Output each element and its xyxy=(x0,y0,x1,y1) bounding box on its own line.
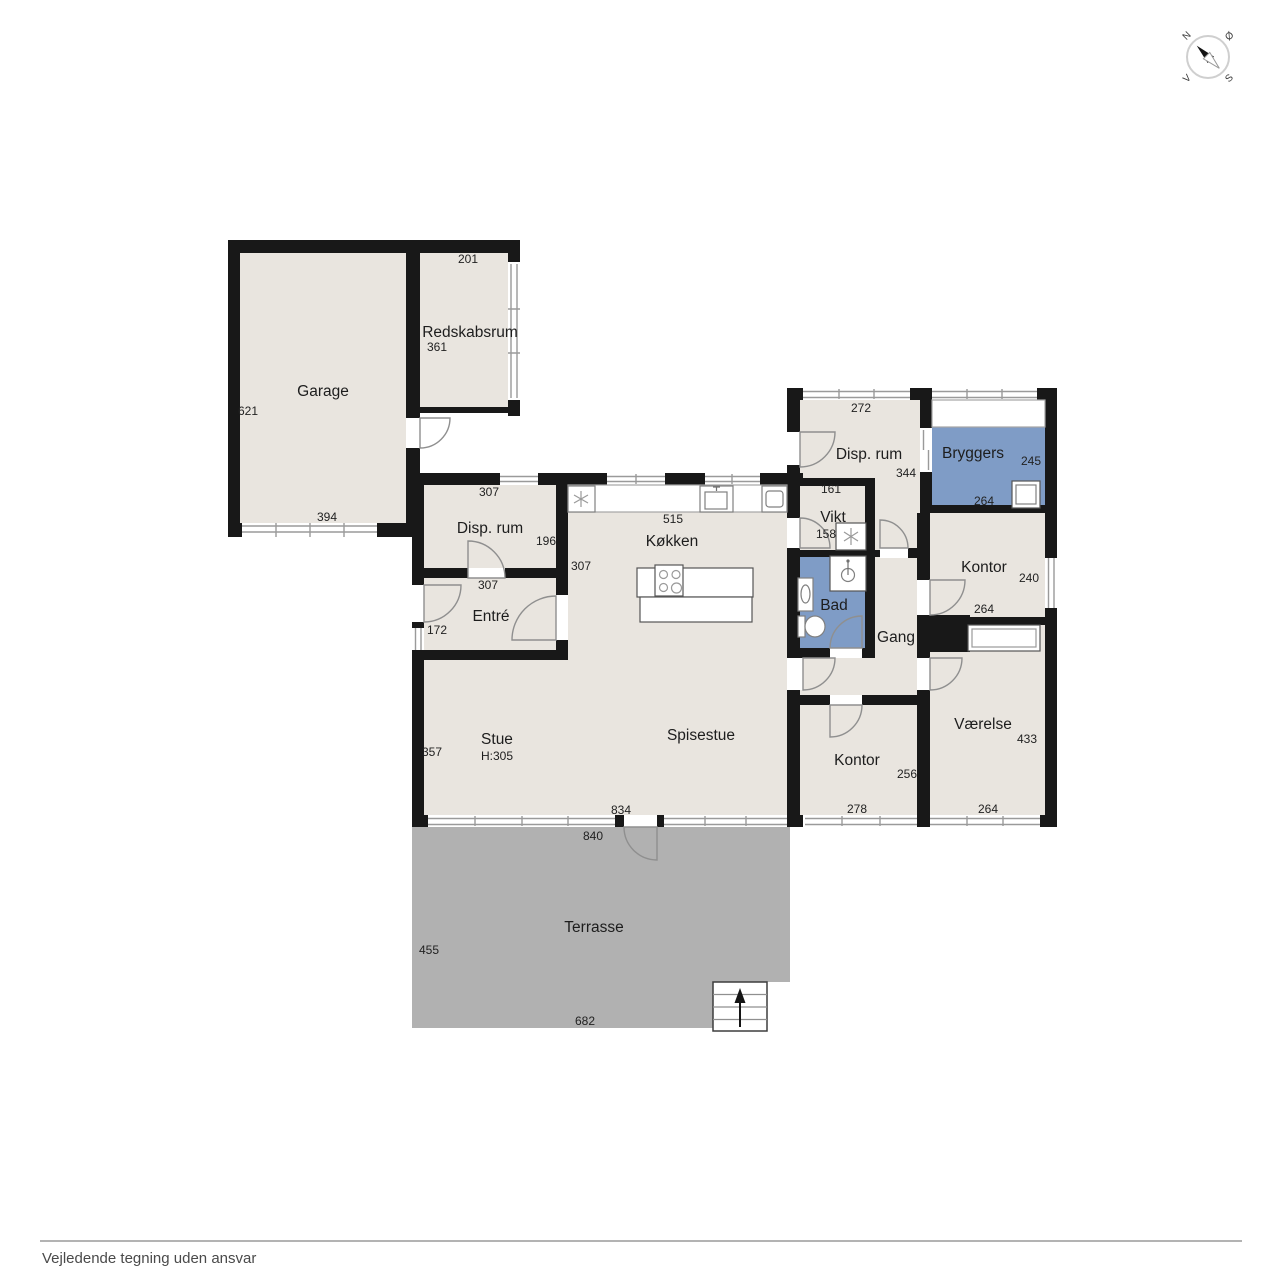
dim-label: 621 xyxy=(238,404,258,418)
dim-label: 682 xyxy=(575,1014,595,1028)
kitchen-island xyxy=(637,565,753,622)
compass-icon: N Ø S V xyxy=(1160,8,1258,106)
dim-label: 515 xyxy=(663,512,683,526)
room-label-garage: Garage xyxy=(297,383,349,400)
room-label-bad: Bad xyxy=(820,597,848,614)
dim-label: 344 xyxy=(896,466,916,480)
dim-label: 240 xyxy=(1019,571,1039,585)
garage-side-door-arc xyxy=(420,418,450,448)
room-label-entre: Entré xyxy=(472,608,509,625)
freezer-icon xyxy=(836,523,866,550)
toilet-icon xyxy=(798,616,825,637)
dim-label: 394 xyxy=(317,510,337,524)
dim-label: 455 xyxy=(419,943,439,957)
dim-label: 245 xyxy=(1021,454,1041,468)
room-label-vaerelse: Værelse xyxy=(954,716,1012,733)
dim-label: 196 xyxy=(536,534,556,548)
washbasin-icon xyxy=(798,578,813,611)
footer: Vejledende tegning uden ansvar xyxy=(40,1241,1242,1267)
compass-e: Ø xyxy=(1223,30,1236,43)
dim-label: 433 xyxy=(1017,732,1037,746)
dim-label: 256 xyxy=(897,767,917,781)
bryggers-sink-icon xyxy=(1012,481,1040,508)
dim-label: 834 xyxy=(611,803,631,817)
room-label-bryggers: Bryggers xyxy=(942,445,1004,462)
dim-label: 272 xyxy=(851,401,871,415)
dim-label: 264 xyxy=(978,802,998,816)
room-label-kokken: Køkken xyxy=(646,533,699,550)
dim-label: 357 xyxy=(422,745,442,759)
dim-label: 307 xyxy=(479,485,499,499)
dim-label: 264 xyxy=(974,494,994,508)
compass-n: N xyxy=(1181,30,1194,43)
dim-label: 278 xyxy=(847,802,867,816)
dim-label: 172 xyxy=(427,623,447,637)
wardrobe xyxy=(968,625,1040,651)
room-label-stue: Stue xyxy=(481,731,513,748)
compass-w: V xyxy=(1181,72,1194,85)
compass-needle-south xyxy=(1203,52,1222,71)
room-height-note: H:305 xyxy=(481,749,513,763)
compass-s: S xyxy=(1223,72,1236,85)
room-label-vikt: Vikt xyxy=(820,509,846,526)
kitchen-counter xyxy=(568,485,787,512)
shower-icon xyxy=(830,556,866,591)
dim-label: 201 xyxy=(458,252,478,266)
dim-label: 307 xyxy=(478,578,498,592)
room-label-terrasse: Terrasse xyxy=(564,919,623,936)
bryggers-counter xyxy=(932,400,1045,427)
room-label-disp-rum-ost: Disp. rum xyxy=(836,446,902,463)
room-label-disp-rum-vest: Disp. rum xyxy=(457,520,523,537)
room-label-spisestue: Spisestue xyxy=(667,727,735,744)
room-label-redskabsrum: Redskabsrum xyxy=(422,324,518,341)
dim-label: 158 xyxy=(816,527,836,541)
dim-label: 161 xyxy=(821,482,841,496)
dim-label: 840 xyxy=(583,829,603,843)
footer-disclaimer: Vejledende tegning uden ansvar xyxy=(42,1250,256,1267)
room-label-kontor-nord: Kontor xyxy=(961,559,1007,576)
dim-label: 361 xyxy=(427,340,447,354)
dim-label: 307 xyxy=(571,559,591,573)
dim-label: 264 xyxy=(974,602,994,616)
terrace-stairs xyxy=(713,982,767,1031)
floor-plan-drawing: N Ø S V Garage Redskabsrum Disp. rum Ent… xyxy=(0,0,1280,1280)
floor-plan-page: N Ø S V Garage Redskabsrum Disp. rum Ent… xyxy=(0,0,1280,1280)
room-label-gang: Gang xyxy=(877,629,915,646)
room-label-kontor-syd: Kontor xyxy=(834,752,880,769)
